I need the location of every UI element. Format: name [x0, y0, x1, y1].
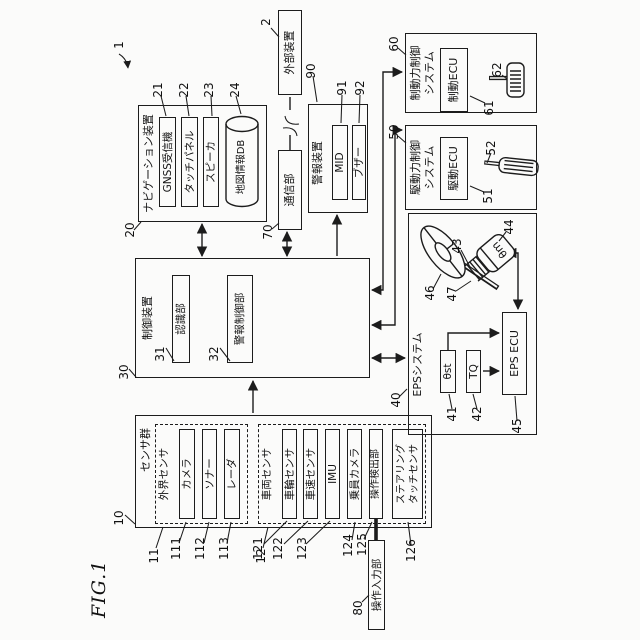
patent-sheet: θm	[0, 0, 640, 640]
drive-system-label-line1: 駆動力制御	[409, 125, 423, 210]
external-device-box: 外部装置	[278, 10, 302, 95]
ref-123: 123	[295, 540, 309, 560]
ref-1: 1	[112, 35, 126, 55]
steering-touch-sensor-box: ステアリング タッチセンサ	[392, 429, 423, 519]
ref-2: 2	[259, 12, 273, 32]
steering-angle-box: θst	[440, 350, 456, 393]
ref-31: 31	[153, 344, 167, 364]
ref-122: 122	[271, 540, 285, 560]
ref-20: 20	[123, 220, 137, 240]
touch-panel-box: タッチパネル	[181, 117, 198, 207]
communication-unit-box: 通信部	[278, 150, 302, 230]
recognition-unit-box: 認識部	[172, 275, 190, 363]
camera-box: カメラ	[179, 429, 195, 519]
ref-61: 61	[482, 98, 496, 118]
ref-44: 44	[502, 217, 516, 237]
sonar-box: ソナー	[202, 429, 217, 519]
gnss-receiver-box: GNSS受信機	[159, 117, 176, 207]
alarm-control-unit-box: 警報制御部	[227, 275, 253, 363]
navigation-device-label: ナビゲーション装置	[142, 107, 155, 220]
ref-43: 43	[450, 236, 464, 256]
ref-80: 80	[351, 598, 365, 618]
sensor-group-label: センサ群	[139, 418, 152, 482]
ref-40: 40	[389, 390, 403, 410]
ref-90: 90	[304, 61, 318, 81]
radar-box: レーダ	[224, 429, 240, 519]
ref-46: 46	[423, 283, 437, 303]
speed-sensor-box: 車速センサ	[303, 429, 318, 519]
imu-box: IMU	[325, 429, 340, 519]
operation-input-box: 操作入力部	[368, 540, 385, 630]
steering-touch-line1: ステアリング	[395, 444, 408, 504]
wireless-link-icon	[283, 97, 299, 150]
map-db-label: 地図情報DB	[235, 131, 248, 203]
steering-touch-line2: タッチセンサ	[408, 444, 421, 504]
brake-system-label-line1: 制動力制御	[409, 33, 423, 113]
external-sensors-label: 外界センサ	[158, 424, 171, 524]
buzzer-box: ブザー	[352, 125, 366, 200]
drive-system-label: 駆動力制御 システム	[409, 125, 437, 210]
control-drive-link	[372, 130, 402, 325]
ref-70: 70	[261, 222, 275, 242]
alarm-device-label: 警報装置	[311, 113, 324, 213]
ref-51: 51	[481, 186, 495, 206]
ref-42: 42	[470, 404, 484, 424]
ref-32: 32	[207, 344, 221, 364]
ref-24: 24	[228, 80, 242, 100]
ref-22: 22	[177, 80, 191, 100]
vehicle-sensors-label: 車両センサ	[261, 424, 274, 524]
ref-47: 47	[445, 284, 459, 304]
ref-113: 113	[217, 540, 231, 560]
wheel-sensor-box: 車輪センサ	[282, 429, 297, 519]
ref-23: 23	[202, 80, 216, 100]
ref-50: 50	[387, 122, 401, 142]
ref-92: 92	[353, 78, 367, 98]
ref-30: 30	[117, 362, 131, 382]
ref-21: 21	[151, 80, 165, 100]
figure-title: FIG.1	[88, 560, 110, 618]
system-ref-arrow	[119, 54, 128, 68]
eps-ecu-box: EPS ECU	[502, 312, 527, 395]
ref-126: 126	[404, 542, 418, 562]
brake-system-label-line2: システム	[423, 33, 437, 113]
ref-11: 11	[147, 546, 161, 566]
torque-box: TQ	[466, 350, 481, 393]
drive-ecu-box: 駆動ECU	[440, 137, 468, 200]
ref-91: 91	[335, 78, 349, 98]
ref-45: 45	[510, 416, 524, 436]
ref-41: 41	[445, 404, 459, 424]
occupant-camera-box: 乗員カメラ	[347, 429, 362, 519]
ref-124: 124	[341, 537, 355, 557]
control-brake-link	[372, 72, 402, 290]
ref-10: 10	[112, 508, 126, 528]
operation-detector-box: 操作検出部	[369, 429, 383, 519]
ref-112: 112	[193, 540, 207, 560]
figure-canvas: θm	[0, 0, 640, 640]
drive-system-label-line2: システム	[423, 125, 437, 210]
brake-ecu-box: 制動ECU	[440, 48, 468, 112]
brake-system-label: 制動力制御 システム	[409, 33, 437, 113]
ref-125: 125	[355, 536, 369, 556]
ref-121: 121	[251, 540, 265, 560]
speaker-box: スピーカ	[203, 117, 219, 207]
mid-box: MID	[332, 125, 348, 200]
ref-62: 62	[490, 60, 504, 80]
ref-111: 111	[169, 540, 183, 560]
ref-52: 52	[484, 138, 498, 158]
ref-60: 60	[387, 34, 401, 54]
eps-system-label: EPSシステム	[411, 317, 424, 412]
